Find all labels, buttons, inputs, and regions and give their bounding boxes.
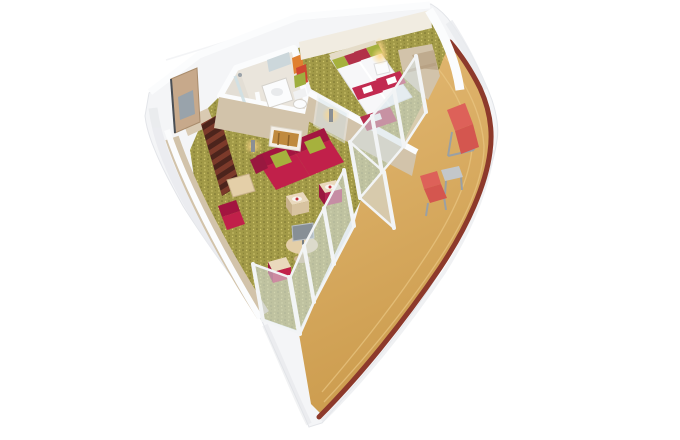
entry-door [171,68,200,133]
wall-artwork [269,126,302,151]
cruise-suite-3d-rendering [0,0,680,440]
sink-basin [271,88,283,96]
cube-table-2-flowers [329,186,332,189]
sconce-fixture-left [251,140,255,152]
nightstand-lamp-glow [371,47,389,65]
cube-table-1-food [296,198,299,201]
shower-head [238,73,242,77]
toilet [294,100,307,109]
sconce-fixture-divider [329,109,333,122]
